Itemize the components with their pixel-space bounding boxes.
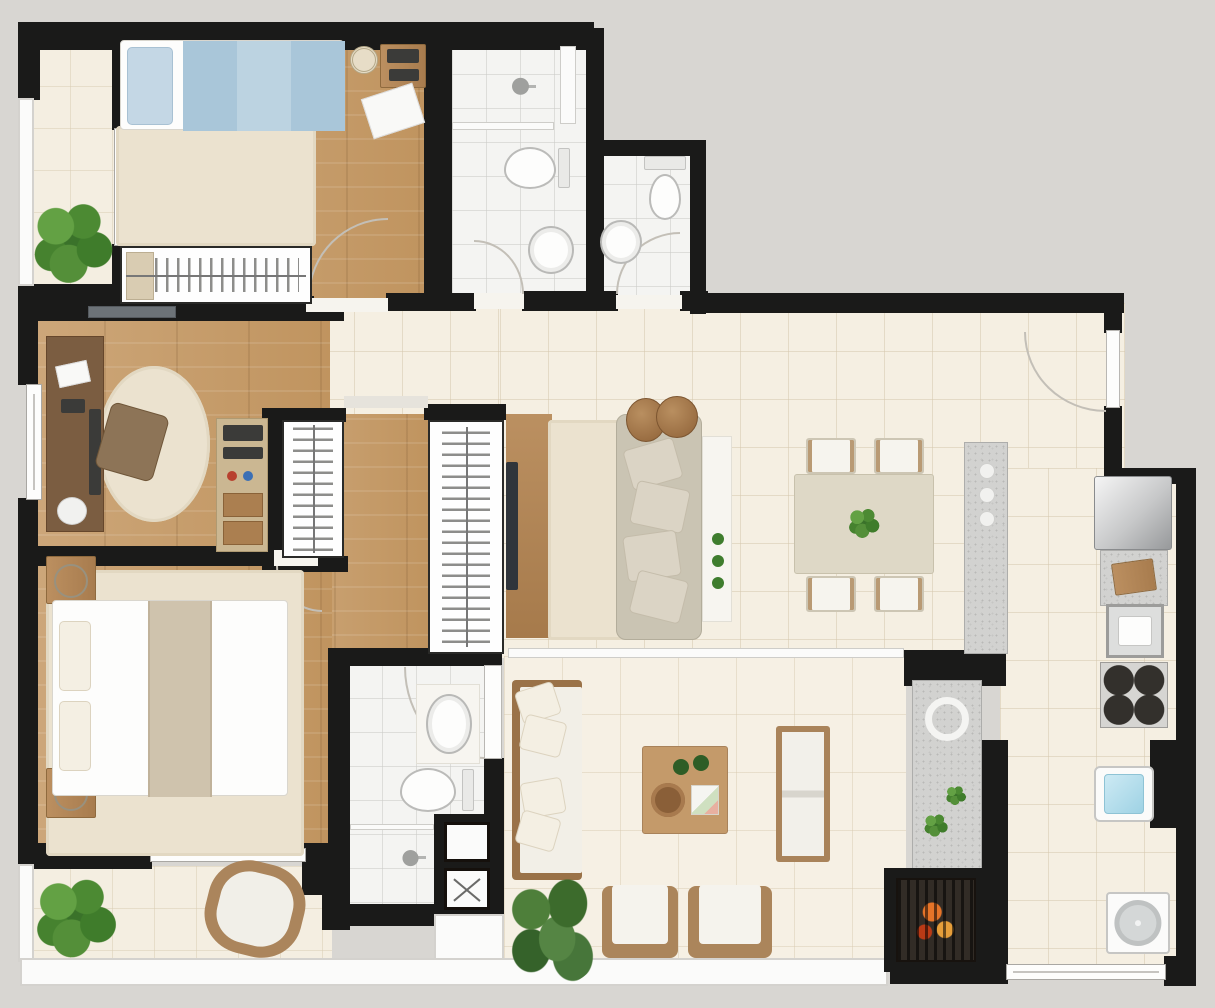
- rug-living: [548, 420, 622, 640]
- laptop: [387, 49, 419, 63]
- sink-3: [426, 694, 472, 754]
- nightstand-1: [46, 556, 96, 604]
- shaft-door-1: [444, 822, 490, 862]
- counter-bath2: [416, 684, 480, 764]
- dining-chair-2: [874, 438, 924, 474]
- shelf-office: [216, 418, 268, 552]
- railing-bottom: [20, 958, 888, 986]
- wall-left-mid: [18, 546, 38, 860]
- counter-kitchen: [1100, 550, 1168, 606]
- coffee-table-terrace: [642, 746, 728, 834]
- basket: [126, 252, 154, 300]
- wall-corner-terrace: [322, 858, 350, 930]
- wall-wc-top: [586, 140, 706, 156]
- stove: [1100, 662, 1168, 728]
- shower-head-2: [400, 846, 430, 868]
- dining-chair-1: [806, 438, 856, 474]
- sink-kitchen: [1106, 604, 1164, 658]
- keyboard: [389, 69, 419, 81]
- throw-master: [148, 601, 212, 797]
- rug-bedroom2: [116, 126, 316, 246]
- decor-dot-3: [712, 577, 724, 589]
- pouf-2: [656, 396, 698, 438]
- door-bedroom2: [306, 298, 388, 312]
- bar-disc-1: [979, 463, 995, 479]
- gourmet-plant-2: [923, 813, 949, 839]
- bbq-grill: [896, 878, 976, 962]
- glass-shower2: [350, 824, 434, 830]
- window-office-top: [88, 306, 176, 318]
- fridge: [1094, 476, 1172, 550]
- cushion-2: [629, 480, 691, 534]
- toilet-1-bowl: [504, 147, 556, 189]
- toilet-1-tank: [558, 148, 570, 188]
- glass-shower1-v: [560, 46, 576, 124]
- fern-terrace: [500, 868, 604, 986]
- plant-balcony1: [30, 198, 116, 292]
- decor-dot-2: [712, 555, 724, 567]
- door-bathroom1: [474, 293, 524, 309]
- wall-living-top: [700, 293, 1124, 313]
- gourmet-plant-1: [945, 785, 967, 807]
- shelf-item-1: [223, 425, 263, 441]
- pillow-master-2: [59, 701, 91, 771]
- table-decor: [691, 785, 719, 815]
- sink-1: [528, 226, 574, 274]
- toilet-2: [640, 156, 690, 224]
- decor-dot-1: [712, 533, 724, 545]
- blanket-fold: [237, 41, 291, 131]
- laundry-tank: [1094, 766, 1154, 822]
- paper-1: [55, 360, 91, 388]
- table-tray: [651, 783, 685, 817]
- bed-single: [120, 40, 344, 130]
- shelf-dot-blue: [243, 471, 253, 481]
- wall-closet-right-top: [424, 404, 506, 420]
- toilet-1: [502, 144, 572, 192]
- threshold-corridor: [344, 396, 428, 408]
- terrace-pillow-2: [518, 713, 567, 758]
- toilet-3: [396, 764, 476, 816]
- pillow-master-1: [59, 621, 91, 691]
- sink-2: [600, 220, 642, 264]
- wall-top-left-corner: [18, 22, 40, 100]
- wall-entry-lower: [1104, 406, 1122, 472]
- wall-office-top: [18, 303, 344, 321]
- wall-service-corner: [1164, 956, 1196, 986]
- centerpiece-plant: [847, 507, 881, 541]
- railing-below-bath2: [434, 914, 504, 960]
- closet-right: [428, 420, 504, 654]
- tv-panel: [506, 414, 552, 638]
- tv: [506, 462, 518, 590]
- counter-bar: [964, 442, 1008, 654]
- sofa-living: [616, 414, 702, 640]
- wall-hall-top-baths: [522, 291, 618, 311]
- closet-left: [282, 420, 344, 558]
- dining-table: [794, 474, 934, 574]
- window-service-bottom: [1006, 964, 1166, 980]
- wall-hall-top-mid: [386, 293, 452, 311]
- wall-office-left-upper: [18, 303, 38, 385]
- window-office-left: [26, 384, 42, 500]
- shaft-door-2: [444, 868, 490, 910]
- bed-double: [52, 600, 288, 796]
- toilet-3-bowl: [400, 768, 456, 812]
- bar-disc-3: [979, 511, 995, 527]
- wall-hall-stub-1: [452, 293, 476, 311]
- item: [61, 399, 85, 413]
- washing-machine: [1106, 892, 1170, 954]
- cutting-board: [1111, 558, 1157, 596]
- armchair-2: [688, 886, 772, 958]
- table-plant-2: [693, 755, 709, 771]
- door-entry: [1106, 330, 1120, 408]
- stool-bedroom2: [350, 46, 378, 74]
- dining-chair-3: [806, 576, 856, 612]
- shelf-dot-red: [227, 471, 237, 481]
- bench-terrace: [776, 726, 830, 862]
- disc: [57, 497, 87, 525]
- desk-bedroom2: [380, 44, 426, 88]
- desk-office: [46, 336, 104, 532]
- cushion-4: [628, 569, 689, 624]
- sofa-terrace: [512, 680, 582, 880]
- terrace-pillow-4: [514, 809, 562, 853]
- nightstand-1-ring: [54, 564, 88, 598]
- wall-right-outer: [1176, 468, 1196, 984]
- wall-bed2-bath1: [424, 30, 452, 298]
- armchair-1: [602, 886, 678, 958]
- toilet-3-tank: [462, 769, 474, 811]
- floor-plan: [0, 0, 1215, 1008]
- wall-wc-right: [690, 140, 706, 314]
- side-table: [702, 436, 732, 622]
- shelf-drawer-2: [223, 521, 263, 545]
- toilet-2-bowl: [649, 174, 681, 220]
- plant-balcony2: [32, 874, 120, 966]
- wall-bath1-right: [586, 28, 604, 310]
- glass-shower1-h: [452, 122, 554, 130]
- table-plant-1: [673, 759, 689, 775]
- shower-head-1: [510, 72, 540, 98]
- counter-gourmet: [912, 680, 982, 878]
- door-wc: [616, 295, 682, 309]
- shelf-drawer-1: [223, 493, 263, 517]
- pillow-blue: [127, 47, 173, 125]
- dining-chair-4: [874, 576, 924, 612]
- slider-terrace: [508, 648, 904, 658]
- door-bathroom2: [484, 665, 502, 759]
- wall-service-pillar: [1150, 740, 1194, 828]
- bar-disc-2: [979, 487, 995, 503]
- shelf-item-2: [223, 447, 263, 459]
- gourmet-sink-ring: [925, 697, 969, 741]
- toilet-2-tank: [644, 156, 686, 170]
- wardrobe-bedroom2: [120, 246, 312, 304]
